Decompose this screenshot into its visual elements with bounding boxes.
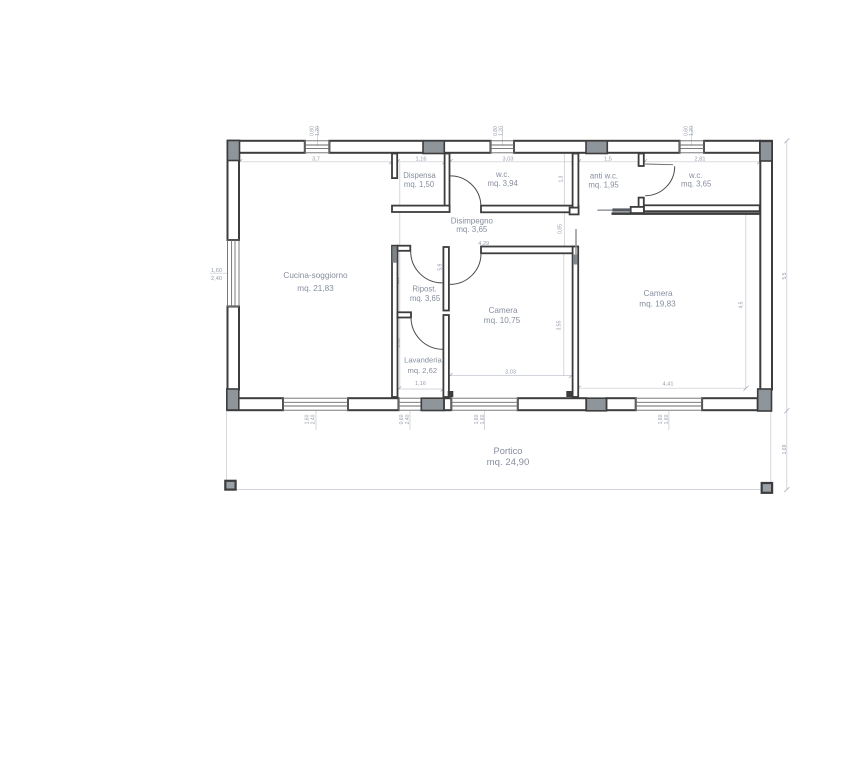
svg-text:1,5: 1,5 <box>604 156 612 162</box>
svg-text:1,60: 1,60 <box>664 414 670 424</box>
svg-text:mq. 3,94: mq. 3,94 <box>488 179 519 188</box>
svg-text:2,40: 2,40 <box>211 276 222 282</box>
svg-text:1,69: 1,69 <box>782 444 788 454</box>
svg-text:1,16: 1,16 <box>415 381 426 387</box>
svg-text:1,60: 1,60 <box>211 268 222 274</box>
svg-text:mq. 1,95: mq. 1,95 <box>588 181 619 190</box>
svg-text:Dispensa: Dispensa <box>403 171 436 180</box>
svg-text:mq. 21,83: mq. 21,83 <box>297 284 334 293</box>
svg-text:1,16: 1,16 <box>416 156 427 162</box>
svg-text:mq. 3,65: mq. 3,65 <box>456 225 488 234</box>
svg-text:2,40: 2,40 <box>405 414 411 424</box>
svg-text:mq. 2,62: mq. 2,62 <box>408 366 438 375</box>
svg-text:3,03: 3,03 <box>505 370 516 376</box>
svg-text:2,81: 2,81 <box>695 156 706 162</box>
svg-text:4,5: 4,5 <box>738 301 744 308</box>
svg-text:mq. 10,75: mq. 10,75 <box>484 316 521 325</box>
svg-text:Lavanderia: Lavanderia <box>404 356 442 365</box>
svg-text:1,20: 1,20 <box>689 126 695 136</box>
svg-text:mq. 3,65: mq. 3,65 <box>681 179 712 188</box>
svg-text:1,3: 1,3 <box>559 175 565 182</box>
svg-text:mq. 19,83: mq. 19,83 <box>639 300 676 309</box>
svg-text:Ripost.: Ripost. <box>412 285 436 294</box>
svg-text:Camera: Camera <box>488 306 518 315</box>
svg-text:3,55: 3,55 <box>556 320 562 330</box>
svg-text:anti w.c.: anti w.c. <box>590 171 618 180</box>
svg-text:Camera: Camera <box>643 289 673 298</box>
svg-text:1,20: 1,20 <box>315 126 321 136</box>
svg-text:4,41: 4,41 <box>663 382 674 388</box>
svg-text:mq. 1,50: mq. 1,50 <box>404 180 435 189</box>
svg-text:mq. 3,65: mq. 3,65 <box>410 294 441 303</box>
svg-text:mq. 24,90: mq. 24,90 <box>487 457 530 468</box>
svg-text:w.c.: w.c. <box>495 170 509 179</box>
svg-text:5,5: 5,5 <box>782 272 788 279</box>
svg-text:Portico: Portico <box>494 446 523 456</box>
svg-text:1,60: 1,60 <box>480 414 486 424</box>
svg-text:1,20: 1,20 <box>499 126 505 136</box>
svg-text:Cucina-soggiorno: Cucina-soggiorno <box>283 271 348 280</box>
svg-text:0,85: 0,85 <box>558 224 564 234</box>
svg-text:3,03: 3,03 <box>503 156 514 162</box>
svg-text:3,7: 3,7 <box>312 156 320 162</box>
svg-text:2,40: 2,40 <box>311 414 317 424</box>
